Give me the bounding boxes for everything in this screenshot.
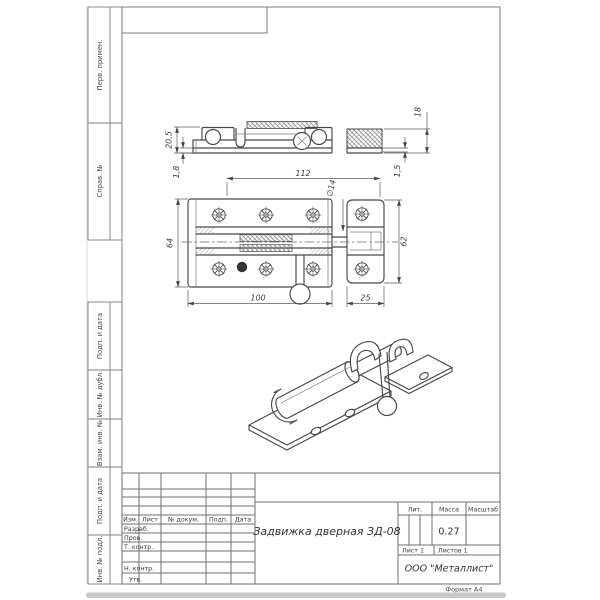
dim-text-112: 112 <box>295 169 310 178</box>
strip-label: Взам. инв. № <box>96 420 104 466</box>
keeper-side-plate <box>347 148 382 153</box>
dim-text-18: 18 <box>414 107 423 117</box>
mass-label: Масса <box>439 507 459 514</box>
sheets-total: Листов 1 <box>438 548 468 555</box>
dim-text-dia-14: ∅14 <box>325 179 337 198</box>
title-block: Изм. Лист № докум. Подп. Дата Разраб. Пр… <box>122 473 500 584</box>
strip-label: Справ. № <box>96 164 104 197</box>
dimension-1-5: 1,5 <box>382 137 408 177</box>
dim-text-1-5: 1,5 <box>393 165 402 178</box>
col-podp: Подп. <box>209 517 228 524</box>
dimension-25: 25 <box>347 286 384 307</box>
bolt-end-circle-right <box>312 130 327 145</box>
rail-hatch <box>310 249 332 256</box>
row-razrab: Разраб. <box>124 525 149 533</box>
title-block-header-row: Изм. Лист № докум. Подп. Дата <box>123 517 251 524</box>
rail-hatch <box>310 228 332 235</box>
dim-text-1-8: 1,8 <box>172 166 181 179</box>
row-n-kontr: Н. контр. <box>124 566 154 573</box>
dim-text-62: 62 <box>400 236 409 246</box>
logo-letter: М <box>239 265 245 272</box>
isometric-view <box>249 339 452 450</box>
strip-label: Инв. № подл. <box>96 536 104 583</box>
dim-text-25: 25 <box>360 294 370 303</box>
dimension-18: 18 <box>384 107 430 153</box>
row-t-kontr: Т. контр. <box>123 544 153 551</box>
sheet-number: Лист 1 <box>402 548 424 555</box>
col-list: Лист <box>142 517 158 524</box>
col-dokum: № докум. <box>167 517 199 524</box>
strip-box-sprav-no <box>88 123 122 240</box>
dimension-64: 64 <box>166 199 189 287</box>
bolt-end-circle-left <box>206 130 221 145</box>
keeper-side-knurl <box>347 129 382 148</box>
page-shadow <box>86 593 506 599</box>
mass-value: 0.27 <box>438 527 459 538</box>
strip-box-podp-data-2 <box>88 467 122 535</box>
bolt-knurl-band <box>240 245 292 252</box>
document-title: Задвижка дверная ЗД-08 <box>253 525 400 538</box>
col-data: Дата <box>235 517 251 524</box>
left-margin-strip <box>88 7 122 584</box>
bolt-knurl-band <box>240 235 292 242</box>
row-utv: Утв. <box>129 577 142 584</box>
dimension-112: 112 <box>227 169 380 197</box>
strip-label: Подп. и дата <box>96 313 104 359</box>
dim-text-64: 64 <box>166 238 175 248</box>
rail-hatch <box>196 228 214 235</box>
strip-box-perv-primen <box>88 7 122 123</box>
format-label: Формат А4 <box>445 586 482 594</box>
col-izm: Изм. <box>123 517 138 524</box>
rail-hatch <box>196 249 214 256</box>
spring-slot <box>236 128 245 147</box>
top-left-reference-box <box>122 7 267 33</box>
strip-box-podp-data-1 <box>88 302 122 370</box>
scale-label: Масштаб <box>468 506 498 514</box>
drawing-canvas: Перв. примен. Справ. № Подп. и дата Инв.… <box>0 0 600 600</box>
keeper-plate <box>347 200 384 283</box>
row-prov: Пров. <box>124 535 142 542</box>
lit-label: Лит. <box>408 507 423 514</box>
dim-text-100: 100 <box>250 294 265 303</box>
manufacturer-logo: М <box>237 262 247 272</box>
dim-text-20-5: 20,5 <box>165 131 174 149</box>
strip-box-vzam-inv <box>88 419 122 467</box>
strip-label: Инв. № дубл. <box>96 371 104 418</box>
drawing-sheet: Перв. примен. Справ. № Подп. и дата Инв.… <box>0 0 600 600</box>
dimension-1-8: 1,8 <box>172 137 193 178</box>
strip-box-inv-dubl <box>88 370 122 419</box>
screw-head <box>294 133 311 150</box>
strip-label: Подп. и дата <box>96 478 104 524</box>
plan-view: М <box>182 199 398 304</box>
strip-box-inv-podl <box>88 535 122 584</box>
side-view <box>193 122 382 154</box>
left-margin-strip-labels: Перв. примен. Справ. № Подп. и дата Инв.… <box>96 39 104 582</box>
strip-label: Перв. примен. <box>96 39 104 90</box>
company-name: ООО "Металлист" <box>405 564 494 575</box>
dimension-62: 62 <box>384 200 409 283</box>
